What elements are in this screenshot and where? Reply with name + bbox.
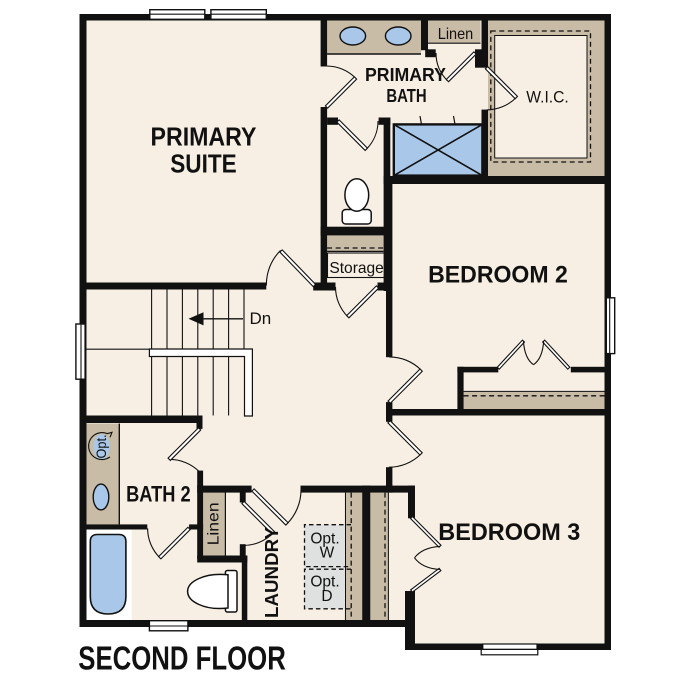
svg-text:Storage: Storage [329, 260, 384, 277]
svg-text:BATH 2: BATH 2 [126, 481, 191, 506]
svg-text:LAUNDRY: LAUNDRY [261, 526, 282, 618]
svg-text:W.I.C.: W.I.C. [526, 88, 569, 107]
svg-text:Opt.: Opt. [94, 435, 109, 459]
svg-text:PRIMARY: PRIMARY [151, 122, 257, 152]
svg-text:SECOND FLOOR: SECOND FLOOR [78, 640, 286, 677]
svg-text:D: D [321, 588, 332, 605]
svg-text:PRIMARY: PRIMARY [365, 64, 447, 85]
svg-text:SUITE: SUITE [170, 149, 237, 179]
svg-text:BEDROOM 2: BEDROOM 2 [428, 262, 568, 289]
svg-text:BEDROOM 3: BEDROOM 3 [438, 519, 580, 546]
svg-text:Linen: Linen [206, 502, 223, 545]
svg-text:Linen: Linen [438, 26, 474, 43]
svg-text:BATH: BATH [386, 85, 426, 106]
svg-text:Dn: Dn [250, 309, 272, 328]
svg-text:W: W [320, 545, 335, 562]
